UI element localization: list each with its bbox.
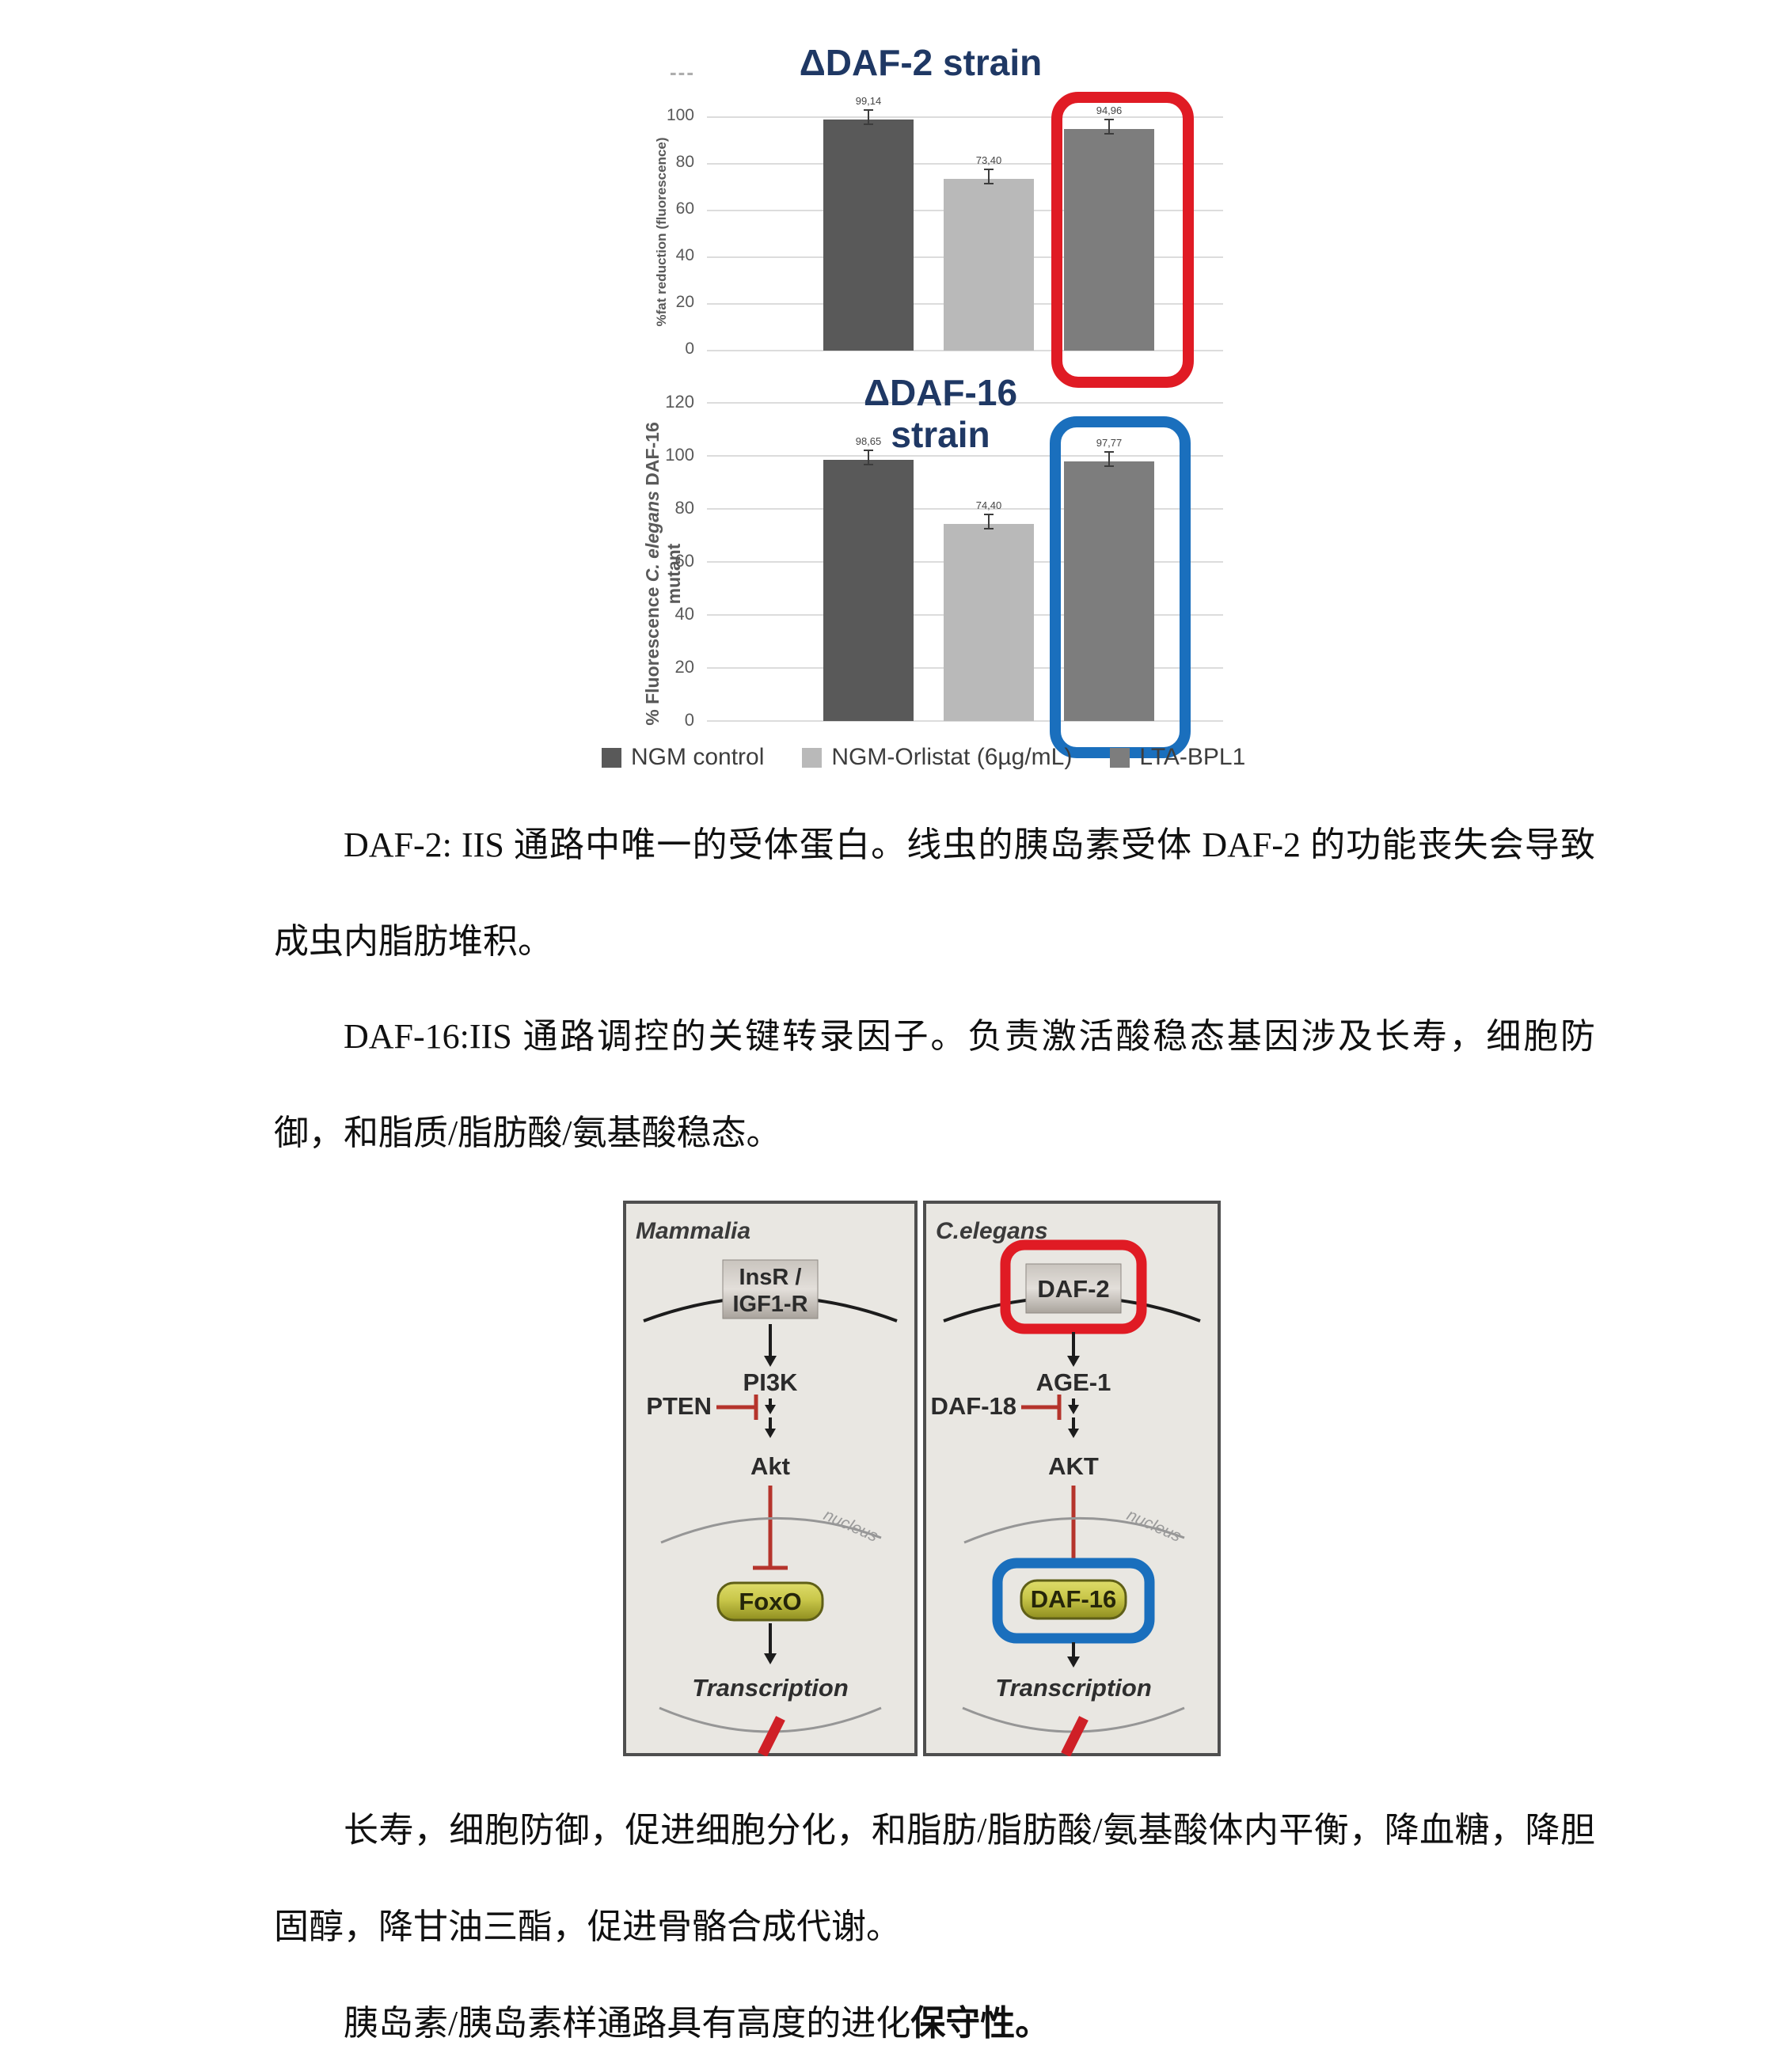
error-bar (868, 109, 869, 125)
y-tick-label: 60 (645, 199, 694, 218)
tf-label: DAF-16 (1031, 1585, 1117, 1613)
error-bar-cap (984, 514, 994, 515)
chart2-title: ΔDAF-16 strain (703, 372, 1178, 456)
bar-2 (944, 524, 1034, 721)
bar-value-label: 99,14 (829, 95, 908, 107)
paragraph-effects: 长寿，细胞防御，促进细胞分化，和脂肪/脂肪酸/氨基酸体内平衡，降血糖，降胆固醇，… (274, 1782, 1595, 1975)
receptor-label-line2: IGF1-R (732, 1292, 807, 1317)
inhibitor-label: PTEN (646, 1392, 712, 1420)
chart-legend: NGM control NGM-Orlistat (6µg/mL) LTA-BP… (602, 744, 1245, 771)
chart2-ylabel-prefix: % Fluorescence (642, 582, 663, 726)
akt-label: Akt (750, 1452, 790, 1480)
legend-swatch-gray-icon (1110, 748, 1130, 768)
chart2-title-line2: strain (703, 414, 1178, 456)
pathway-panel-celegans: C.elegans DAF-2 AGE-1 DAF-18 AKT nucleus… (923, 1201, 1221, 1756)
bar-1 (823, 460, 914, 721)
pathway-panel-mammalia: Mammalia InsR / IGF1-R PI3K PTEN Akt nuc… (623, 1201, 918, 1756)
error-bar-cap (864, 123, 873, 125)
legend-item: NGM-Orlistat (6µg/mL) (802, 744, 1072, 771)
document-page: { "figure": { "stray_dashes": "---", "le… (0, 0, 1782, 2058)
paragraph-daf16: DAF-16:IIS 通路调控的关键转录因子。负责激活酸稳态基因涉及长寿，细胞防… (274, 989, 1595, 1182)
bar-1 (823, 120, 914, 351)
kinase-label: PI3K (743, 1368, 799, 1396)
paragraph-daf2: DAF-2: IIS 通路中唯一的受体蛋白。线虫的胰岛素受体 DAF-2 的功能… (274, 797, 1595, 990)
legend-swatch-dark-icon (602, 748, 621, 768)
highlight-ring (1050, 416, 1191, 758)
paragraph-conservation-text: 胰岛素/胰岛素样通路具有高度的进化 (344, 2004, 910, 2043)
kinase-label: AGE-1 (1036, 1368, 1111, 1396)
legend-label: NGM-Orlistat (6µg/mL) (831, 744, 1072, 771)
error-bar-cap (984, 183, 994, 184)
y-tick-label: 100 (645, 106, 694, 125)
tf-label: FoxO (739, 1588, 801, 1615)
error-bar-cap (984, 169, 994, 170)
legend-label: NGM control (631, 744, 764, 771)
inhibitor-label: DAF-18 (930, 1392, 1016, 1420)
transcription-label: Transcription (995, 1674, 1152, 1702)
y-tick-label: 0 (645, 340, 694, 359)
y-tick-label: 80 (645, 153, 694, 172)
receptor-label: DAF-2 (1037, 1275, 1109, 1303)
highlight-ring (1051, 92, 1194, 388)
legend-item: NGM control (602, 744, 764, 771)
y-tick-label: 20 (645, 293, 694, 312)
species-label: Mammalia (636, 1218, 750, 1244)
error-bar-cap (864, 464, 873, 465)
error-bar (988, 514, 990, 529)
chart1-ylabel: %fat reduction (fluorescence) (654, 113, 670, 351)
legend-label: LTA-BPL1 (1139, 744, 1245, 771)
receptor-label-line1: InsR / (739, 1265, 802, 1290)
bar-2 (944, 179, 1034, 351)
bar-value-label: 73,40 (949, 154, 1028, 166)
chart2-title-line1: ΔDAF-16 (703, 372, 1178, 414)
akt-label: AKT (1048, 1452, 1099, 1480)
error-bar (988, 169, 990, 184)
bar-value-label: 74,40 (949, 499, 1028, 511)
paragraph-conservation-bold: 保守性。 (910, 2004, 1050, 2043)
legend-swatch-light-icon (802, 748, 822, 768)
legend-item: LTA-BPL1 (1110, 744, 1245, 771)
error-bar-cap (984, 528, 994, 529)
chart2-ylabel: % Fluorescence C. elegans DAF-16 mutant (642, 408, 685, 740)
y-tick-label: 40 (645, 246, 694, 265)
error-bar-cap (864, 109, 873, 111)
chart2-ylabel-species: C. elegans (642, 491, 663, 582)
transcription-label: Transcription (692, 1674, 849, 1702)
chart1-title: ΔDAF-2 strain (683, 41, 1158, 84)
